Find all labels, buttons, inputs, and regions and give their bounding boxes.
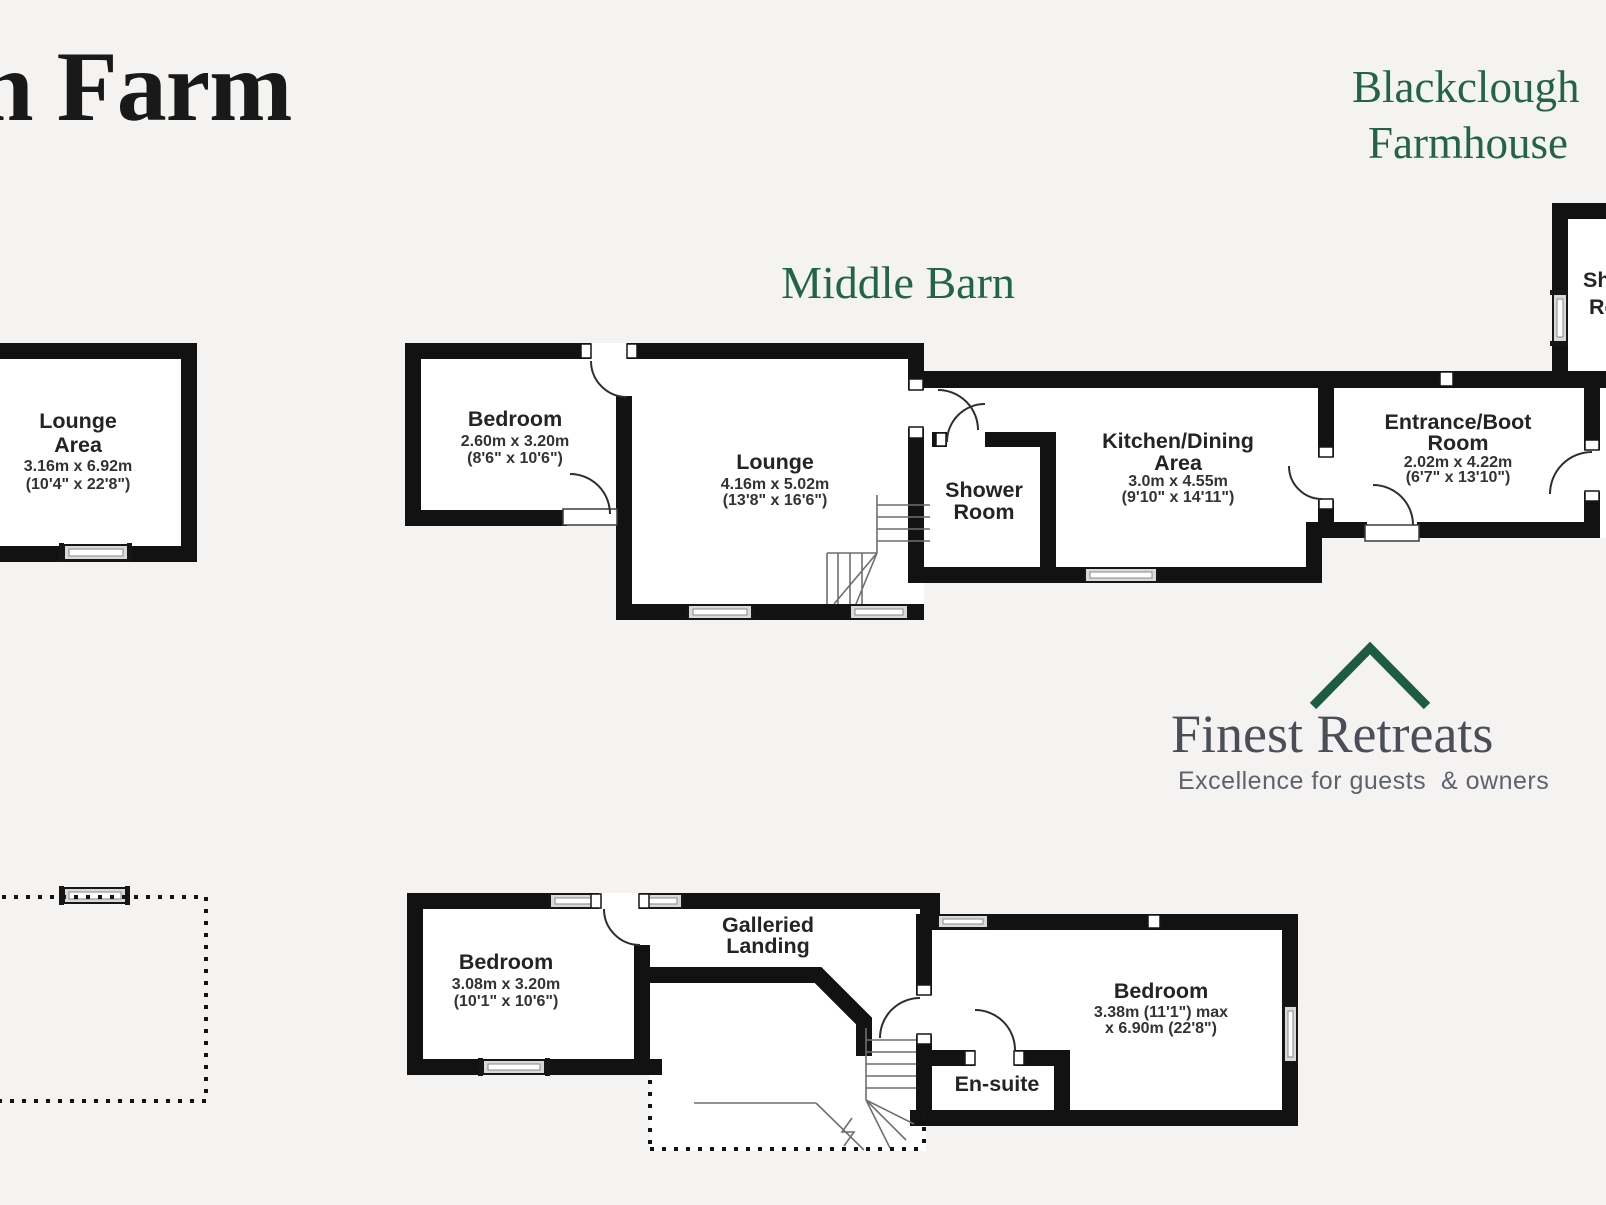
room-name: Kitchen/Dining bbox=[1102, 429, 1254, 453]
logo-text: Finest Retreats bbox=[1171, 706, 1493, 763]
room-name: Bedroom bbox=[1114, 979, 1208, 1003]
logo-tagline: Excellence for guests & owners bbox=[1178, 768, 1549, 794]
room-dims: x 6.90m (22'8") bbox=[1105, 1020, 1217, 1037]
window bbox=[478, 1058, 550, 1076]
window bbox=[1284, 1006, 1297, 1062]
room-dims: 3.16m x 6.92m bbox=[24, 458, 133, 475]
dashed-room-outline bbox=[0, 897, 206, 1101]
window bbox=[1085, 568, 1157, 582]
bedroom-ff-right-label: Bedroom 3.38m (11'1") max x 6.90m (22'8"… bbox=[1094, 979, 1228, 1037]
room-dims: (6'7" x 13'10") bbox=[1406, 469, 1511, 486]
room-dims: (13'8" x 16'6") bbox=[723, 492, 828, 509]
barn-title: Middle Barn bbox=[758, 259, 1038, 307]
room-name: Bedroom bbox=[468, 407, 562, 431]
room-dims: (8'6" x 10'6") bbox=[467, 450, 563, 467]
shower-room-label: Shower Room bbox=[945, 478, 1023, 524]
room-dims: 2.60m x 3.20m bbox=[461, 433, 570, 450]
floorplan-canvas: Lounge Area 3.16m x 6.92m (10'4" x 22'8"… bbox=[0, 0, 1606, 1205]
farmhouse-title-line1: Blackclough bbox=[1352, 64, 1579, 111]
window bbox=[938, 915, 988, 928]
window bbox=[688, 605, 752, 619]
window bbox=[59, 886, 130, 905]
floorplan-page: Lounge Area 3.16m x 6.92m (10'4" x 22'8"… bbox=[0, 0, 1606, 1205]
room-name: Room bbox=[1428, 431, 1489, 455]
ensuite-label: En-suite bbox=[955, 1072, 1040, 1096]
room-dims: (9'10" x 14'11") bbox=[1122, 489, 1235, 506]
bedroom-ff-left-label: Bedroom 3.08m x 3.20m (10'1" x 10'6") bbox=[452, 950, 561, 1010]
room-dims: (10'4" x 22'8") bbox=[26, 476, 131, 493]
window bbox=[1550, 290, 1568, 346]
room-dims: 3.0m x 4.55m bbox=[1128, 473, 1228, 490]
room-name: En-suite bbox=[955, 1072, 1040, 1096]
room-name: Bedroom bbox=[459, 950, 553, 974]
room-name: Room bbox=[954, 500, 1015, 524]
bedroom-gf-label: Bedroom 2.60m x 3.20m (8'6" x 10'6") bbox=[461, 407, 570, 467]
window bbox=[850, 605, 908, 619]
logo-chevron bbox=[1313, 648, 1427, 706]
room-dims: 4.16m x 5.02m bbox=[721, 476, 830, 493]
room-name: Lounge bbox=[736, 450, 814, 474]
door-sill bbox=[563, 509, 617, 525]
room-dims: 3.38m (11'1") max bbox=[1094, 1004, 1228, 1021]
room-name: Shower bbox=[1583, 268, 1606, 292]
farmhouse-title-line2: Farmhouse bbox=[1368, 120, 1568, 167]
room-name: Room bbox=[1589, 295, 1606, 319]
room-name: Shower bbox=[945, 478, 1023, 502]
lounge-label: Lounge 4.16m x 5.02m (13'8" x 16'6") bbox=[721, 450, 830, 509]
door-sill bbox=[1365, 525, 1419, 541]
room-dims: (10'1" x 10'6") bbox=[454, 993, 559, 1010]
room-name: Landing bbox=[726, 934, 810, 958]
room-name: Lounge bbox=[39, 409, 117, 433]
window bbox=[59, 543, 132, 562]
farm-title: n Farm bbox=[0, 34, 291, 139]
galleried-landing-label: Galleried Landing bbox=[722, 913, 814, 958]
room-name: Area bbox=[1154, 451, 1203, 475]
room-dims: 3.08m x 3.20m bbox=[452, 976, 561, 993]
room-name: Area bbox=[54, 433, 103, 457]
